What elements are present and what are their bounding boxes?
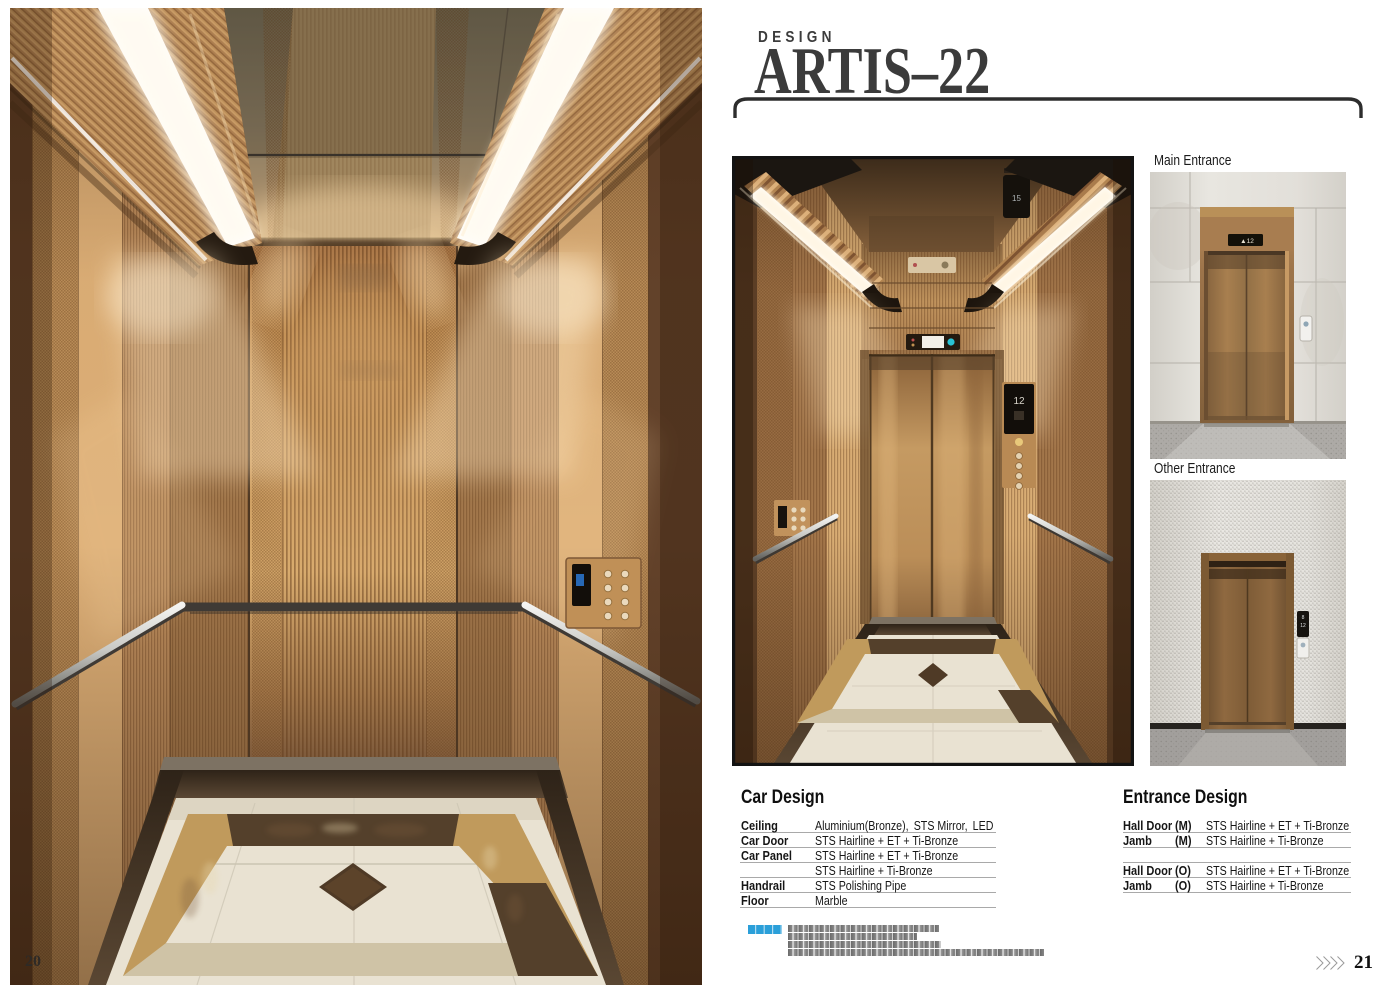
svg-text:12: 12 xyxy=(1300,623,1306,629)
svg-text:12: 12 xyxy=(1013,396,1025,407)
svg-text:▲12: ▲12 xyxy=(1240,238,1254,245)
svg-text:8: 8 xyxy=(1302,615,1305,621)
svg-text:15: 15 xyxy=(1012,194,1021,203)
